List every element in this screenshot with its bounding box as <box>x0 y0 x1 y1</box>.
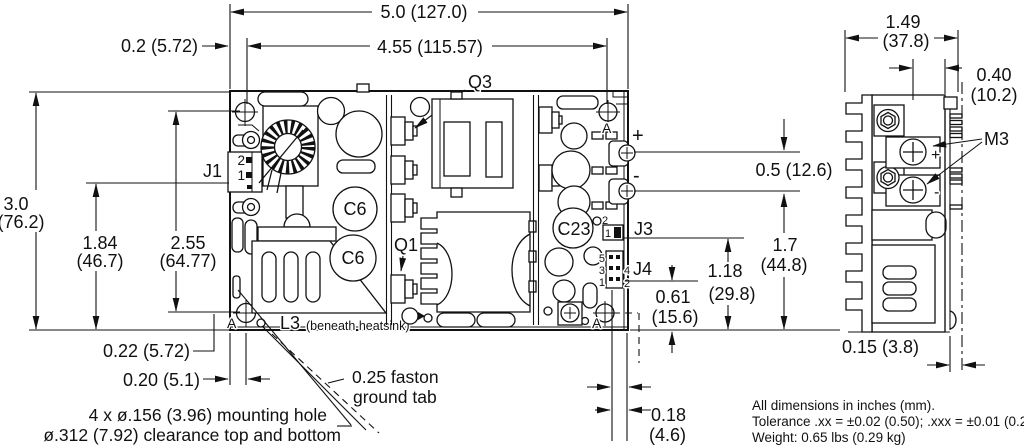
trim-potentiometer <box>558 302 582 325</box>
capacitor <box>561 123 587 149</box>
q3-label: Q3 <box>468 72 492 92</box>
inductor-stem <box>286 186 303 218</box>
callout-ground-tab-line1: 0.25 faston <box>352 367 439 387</box>
dim-side-depth-in: 0.40 <box>976 65 1011 85</box>
dim-hole-span-v-in: 2.55 <box>170 233 205 253</box>
j4-pin1-label: 1 <box>599 277 605 289</box>
q1-label: Q1 <box>394 235 418 255</box>
dim-j4-height-in: 0.61 <box>655 287 690 307</box>
capacitor <box>545 248 573 276</box>
dim-hole-span-h: 4.55 (115.57) <box>377 37 483 57</box>
dim-minus-height-mm: (44.8) <box>760 255 807 275</box>
dim-terminal-pitch: 0.5 (12.6) <box>755 160 832 180</box>
l3-label: L3 <box>280 313 300 333</box>
dim-board-height-in: 3.0 <box>3 194 28 214</box>
dim-pcb-thickness: 0.15 (3.8) <box>842 337 919 357</box>
c6-label: C6 <box>341 248 364 268</box>
c6-label: C6 <box>343 199 366 219</box>
callout-mounting-line1: 4 x ø.156 (3.96) mounting hole <box>89 405 327 425</box>
dim-side-width-in: 1.49 <box>885 12 920 32</box>
dim-j4-edge-in: 0.18 <box>651 405 686 425</box>
callout-mounting-line2: ø.312 (7.92) clearance top and bottom <box>43 425 341 445</box>
ground-tab-slot <box>233 276 240 298</box>
j3-pin1-label: 1 <box>605 228 611 240</box>
side-view: + - <box>846 82 962 372</box>
capacitor <box>552 151 590 189</box>
main-view: 2 1 J1 L3 (beneath heatsink) C6 C6 <box>203 72 653 333</box>
c23-label: C23 <box>557 219 590 239</box>
side-heatsink-fins <box>846 95 872 332</box>
dim-j3-height-mm: (29.8) <box>708 284 755 304</box>
capacitor-pill <box>477 313 515 327</box>
hex-screw-upper <box>877 110 899 132</box>
capacitor-pill <box>337 160 375 173</box>
j4-pin3-label: 3 <box>599 265 605 277</box>
side-bulge <box>950 311 956 329</box>
dim-hole-bottom: 0.22 (5.72) <box>103 341 190 361</box>
mechanical-drawing-page: { "colors": { "ink": "#111111", "paper":… <box>0 0 1024 446</box>
dim-side-width-mm: (37.8) <box>882 31 929 51</box>
dim-board-height-mm: (76.2) <box>0 212 45 232</box>
j1-connector: 2 1 <box>228 152 262 192</box>
j3-label: J3 <box>634 219 653 239</box>
capacitor <box>553 280 575 302</box>
j1-label: J1 <box>203 161 222 181</box>
capacitor-pill <box>258 92 308 106</box>
dim-side-depth-mm: (10.2) <box>970 85 1017 105</box>
dim-edge-to-hole: 0.2 (5.72) <box>121 36 198 56</box>
dim-minus-height-in: 1.7 <box>772 235 797 255</box>
hole-a-label: A <box>602 120 612 136</box>
m3-label: M3 <box>984 129 1009 149</box>
dim-board-width: 5.0 (127.0) <box>380 2 467 22</box>
side-band <box>872 210 932 240</box>
test-point <box>424 314 432 322</box>
note-units: All dimensions in inches (mm). <box>752 398 935 413</box>
capacitor <box>336 111 382 157</box>
hex-screw-lower <box>877 167 899 189</box>
capacitor-pill <box>437 313 475 327</box>
capacitor-pill <box>557 96 598 109</box>
dim-j3-height-in: 1.18 <box>707 261 742 281</box>
dim-hole-span-v-mm: (64.77) <box>159 251 216 271</box>
side-plus-marking: + <box>931 147 940 164</box>
led-indicator <box>402 308 418 324</box>
drawing-canvas: 2 1 J1 L3 (beneath heatsink) C6 C6 <box>0 0 1024 446</box>
j4-pin4-label: 4 <box>624 265 630 277</box>
m3-screw-plus <box>900 139 926 165</box>
hole-a-label: A <box>592 315 602 331</box>
j4-pin5-label: 5 <box>599 253 605 265</box>
m3-screw-minus <box>900 177 926 203</box>
minus-marking: - <box>633 165 640 187</box>
capacitor-pill <box>232 218 243 252</box>
dim-j1-pin-in: 1.84 <box>82 233 117 253</box>
j4-label: J4 <box>633 259 652 279</box>
edge-connector-tab <box>944 97 957 109</box>
test-point <box>544 307 552 315</box>
output-heatsink <box>421 212 536 312</box>
callout-ground-tab-line2: ground tab <box>353 387 437 407</box>
dim-j1-pin-mm: (46.7) <box>76 251 123 271</box>
side-lower-body <box>872 245 935 323</box>
edge-tab <box>357 84 369 92</box>
note-weight: Weight: 0.65 lbs (0.29 kg) <box>752 430 906 445</box>
note-tolerance: Tolerance .xx = ±0.02 (0.50); .xxx = ±0.… <box>752 414 1024 429</box>
beneath-heatsink-note: (beneath heatsink) <box>306 319 410 333</box>
hole-a-label: A <box>227 315 237 331</box>
j4-pin2-label: 2 <box>624 278 630 290</box>
dim-j4-edge-mm: (4.6) <box>649 425 686 445</box>
capacitor <box>411 98 430 117</box>
notes-block: All dimensions in inches (mm). Tolerance… <box>752 398 1024 445</box>
side-minus-marking: - <box>934 184 939 201</box>
dim-hole-left: 0.20 (5.1) <box>123 370 200 390</box>
capacitor-pill <box>583 283 597 308</box>
j1-pin2-label: 2 <box>237 153 245 168</box>
dim-j4-height-mm: (15.6) <box>651 307 698 327</box>
plus-marking: + <box>632 125 644 147</box>
transformer <box>432 92 513 197</box>
j1-pin1-label: 1 <box>237 168 245 183</box>
